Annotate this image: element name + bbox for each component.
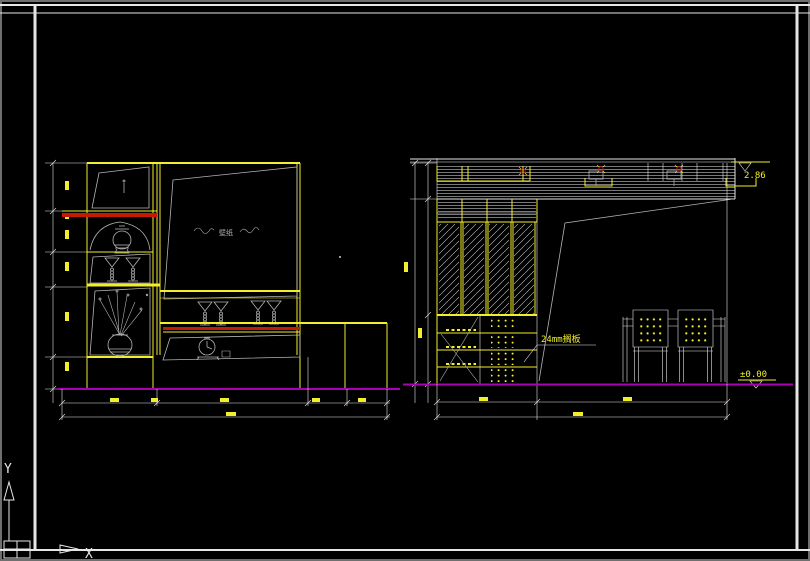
dim-text xyxy=(65,312,69,321)
wardrobe-glass-doors xyxy=(437,222,537,315)
dim-text xyxy=(573,412,583,416)
dimension-left-vertical xyxy=(45,160,87,403)
break-line xyxy=(194,228,214,234)
dim-text xyxy=(623,397,632,401)
vent-grid xyxy=(491,335,515,348)
goblet-vases xyxy=(90,254,150,283)
dim-text xyxy=(110,398,119,402)
dining-chair-2 xyxy=(678,310,713,382)
ucs-x-label: X xyxy=(85,547,93,561)
dim-text xyxy=(65,262,69,271)
display-shelf xyxy=(160,291,387,332)
note-text: 24mm搁板 xyxy=(541,333,581,345)
cad-drawing-canvas[interactable]: Y X xyxy=(0,0,810,561)
vent-grid xyxy=(491,369,515,382)
dim-text xyxy=(312,398,320,402)
wardrobe-lower-unit xyxy=(437,315,537,384)
level-triangle-icon xyxy=(739,163,751,171)
display-cabinet-elevation: 壁纸 xyxy=(45,160,400,420)
leader-line xyxy=(524,345,537,362)
wardrobe xyxy=(437,199,537,384)
door-swing-line xyxy=(440,317,478,381)
door-swing-line xyxy=(441,334,478,382)
break-line xyxy=(240,228,259,233)
dim-text xyxy=(226,412,236,416)
display-column xyxy=(62,163,300,390)
flower-vase xyxy=(90,288,150,356)
red-accent-band xyxy=(163,327,300,330)
vent-grid xyxy=(491,352,515,365)
cad-drawing: Y X xyxy=(0,0,810,561)
ucs-icon: Y X xyxy=(4,462,93,561)
small-ornament xyxy=(222,351,230,357)
dim-text xyxy=(220,398,229,402)
dim-text xyxy=(65,362,69,371)
red-accent-band xyxy=(62,213,157,217)
dimension-right-bottom xyxy=(434,384,730,420)
dim-text xyxy=(418,328,422,338)
elevation-marker-top: 2.86 xyxy=(731,162,770,181)
dim-text xyxy=(479,397,488,401)
dim-text xyxy=(404,262,408,272)
vent-grid xyxy=(491,317,515,330)
elevation-value: ±0.00 xyxy=(740,370,767,380)
sheet-border xyxy=(0,5,810,550)
dimension-right-vertical xyxy=(404,160,437,403)
wardrobe-elevation: 24mm搁板 2.86 ±0.00 xyxy=(403,158,793,420)
dim-text xyxy=(358,398,366,402)
dim-text xyxy=(65,230,69,239)
dining-chair-1 xyxy=(633,310,668,382)
ceiling-detail xyxy=(410,158,756,199)
ucs-y-label: Y xyxy=(4,462,12,477)
dining-chairs xyxy=(623,310,725,382)
feature-wall-panel: 壁纸 xyxy=(164,163,341,389)
counter xyxy=(163,335,300,360)
dim-text xyxy=(65,181,69,190)
elevation-value: 2.86 xyxy=(744,171,766,181)
low-cabinet xyxy=(345,323,387,389)
wall-perspective-line xyxy=(539,199,733,381)
ucs-y-arrow-icon xyxy=(4,482,14,500)
dim-text xyxy=(151,398,158,402)
niche-back-panel xyxy=(92,167,149,208)
wall-finish-label: 壁纸 xyxy=(219,228,233,237)
urn-vase xyxy=(90,222,150,253)
clock xyxy=(197,338,219,360)
